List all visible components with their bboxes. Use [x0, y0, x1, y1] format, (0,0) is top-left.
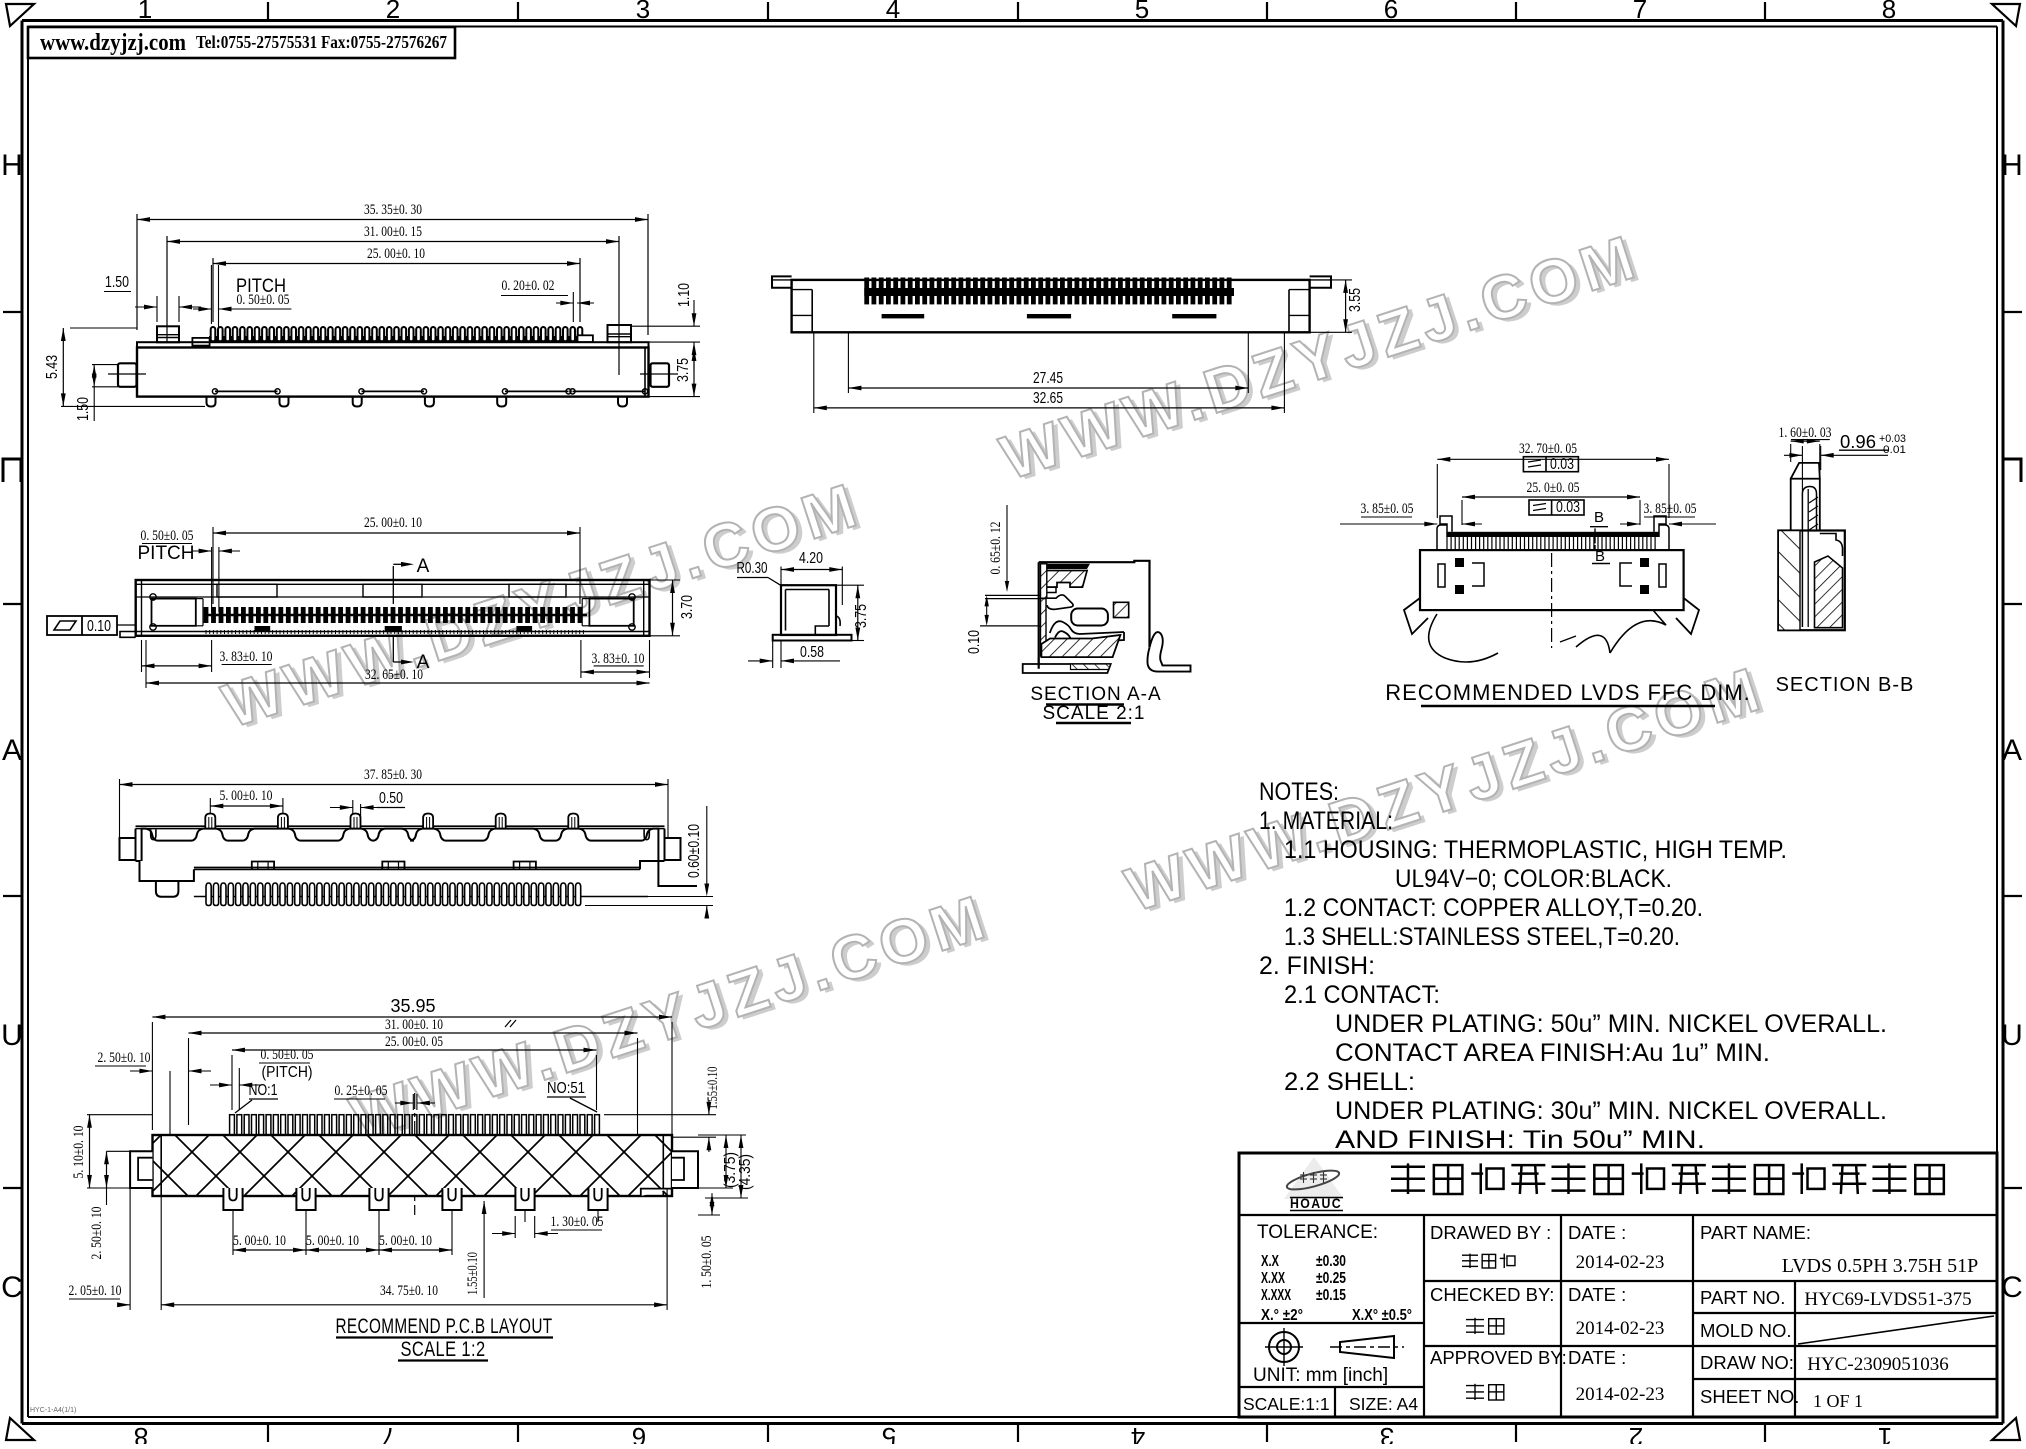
svg-text:8: 8: [134, 1422, 148, 1444]
svg-text:B: B: [1594, 509, 1604, 526]
svg-text:2. 50±0. 10: 2. 50±0. 10: [89, 1207, 105, 1260]
svg-text:U: U: [1, 1019, 23, 1052]
svg-text:1.55±0.10: 1.55±0.10: [705, 1067, 721, 1110]
svg-text:3. 85±0. 05: 3. 85±0. 05: [1644, 501, 1697, 517]
svg-text:2.2 SHELL:: 2.2 SHELL:: [1284, 1068, 1415, 1096]
svg-text:5: 5: [882, 1422, 896, 1444]
svg-text:U: U: [2001, 1019, 2023, 1052]
svg-text:35.95: 35.95: [390, 996, 435, 1016]
svg-text:3. 83±0. 10: 3. 83±0. 10: [592, 651, 645, 667]
svg-text:0. 20±0. 02: 0. 20±0. 02: [502, 278, 555, 294]
svg-text:4: 4: [886, 0, 900, 24]
svg-text:H: H: [2001, 149, 2023, 182]
svg-text:1. 60±0. 03: 1. 60±0. 03: [1779, 425, 1832, 441]
svg-text:2: 2: [386, 0, 400, 24]
svg-text:0.03: 0.03: [1556, 499, 1580, 516]
svg-text:3.55: 3.55: [1347, 288, 1364, 312]
svg-text:HOAUC: HOAUC: [1290, 1196, 1342, 1211]
svg-text:AND FINISH: Tin 50u” MIN.: AND FINISH: Tin 50u” MIN.: [1335, 1126, 1705, 1154]
svg-text:1.2 CONTACT: COPPER ALLOY,T: 1.2 CONTACT: COPPER ALLOY,T=0.20.: [1284, 894, 1703, 922]
svg-text:1 OF 1: 1 OF 1: [1813, 1391, 1863, 1411]
svg-text:TOLERANCE:: TOLERANCE:: [1257, 1222, 1378, 1243]
svg-text:32. 70±0. 05: 32. 70±0. 05: [1519, 441, 1577, 457]
svg-text:25. 00±0. 10: 25. 00±0. 10: [367, 246, 425, 262]
svg-text:2. FINISH:: 2. FINISH:: [1259, 952, 1375, 980]
svg-text:5. 10±0. 10: 5. 10±0. 10: [71, 1126, 87, 1179]
svg-text:UNDER PLATING: 50u” MIN. N: UNDER PLATING: 50u” MIN. NICKEL OVERALL.: [1335, 1010, 1887, 1038]
svg-text:5. 00±0. 10: 5. 00±0. 10: [233, 1233, 286, 1249]
svg-text:APPROVED BY:: APPROVED BY:: [1430, 1347, 1567, 1368]
svg-text:4: 4: [1131, 1422, 1145, 1444]
svg-text:31. 00±0. 15: 31. 00±0. 15: [364, 224, 422, 240]
svg-text:0.10: 0.10: [87, 618, 111, 635]
svg-text:DRAWED BY :: DRAWED BY :: [1430, 1222, 1551, 1243]
svg-text:3: 3: [636, 0, 650, 24]
svg-text:35. 35±0. 30: 35. 35±0. 30: [364, 202, 422, 218]
svg-text:UL94V−0; COLOR:BLACK.: UL94V−0; COLOR:BLACK.: [1395, 865, 1672, 893]
svg-text:SECTION A-A: SECTION A-A: [1030, 684, 1161, 705]
svg-text:X.XX: X.XX: [1261, 1270, 1285, 1287]
svg-text:www.dzyjzj.com: www.dzyjzj.com: [40, 30, 186, 56]
svg-text:MOLD NO.: MOLD NO.: [1700, 1320, 1791, 1341]
svg-text:C: C: [2001, 1271, 2023, 1304]
svg-text:0.58: 0.58: [800, 644, 824, 661]
svg-text:0. 50±0. 05: 0. 50±0. 05: [141, 528, 194, 544]
svg-text:UNIT: mm [inch]: UNIT: mm [inch]: [1253, 1365, 1388, 1386]
svg-text:31. 00±0. 10: 31. 00±0. 10: [385, 1017, 443, 1033]
svg-text:0.50: 0.50: [379, 790, 403, 807]
svg-text:1. MATERIAL:: 1. MATERIAL:: [1259, 807, 1393, 835]
svg-text:7: 7: [382, 1422, 396, 1444]
svg-text:2: 2: [1629, 1422, 1643, 1444]
svg-text:5.43: 5.43: [44, 355, 61, 379]
svg-text:X.X: X.X: [1261, 1253, 1279, 1270]
svg-text:1.50: 1.50: [75, 397, 92, 421]
svg-text:CHECKED BY:: CHECKED BY:: [1430, 1284, 1554, 1305]
svg-text:3. 85±0. 05: 3. 85±0. 05: [1361, 501, 1414, 517]
svg-text:2. 50±0. 10: 2. 50±0. 10: [98, 1050, 151, 1066]
svg-text:25. 00±0. 10: 25. 00±0. 10: [364, 515, 422, 531]
svg-text:37. 85±0. 30: 37. 85±0. 30: [364, 767, 422, 783]
svg-text:PITCH: PITCH: [138, 543, 195, 564]
svg-text:X.XXX: X.XXX: [1261, 1287, 1291, 1304]
svg-text:A: A: [2, 734, 22, 767]
svg-text:A: A: [2002, 734, 2022, 767]
svg-text:DATE :: DATE :: [1568, 1222, 1626, 1243]
svg-text:3.75: 3.75: [675, 358, 692, 382]
svg-text:0.96: 0.96: [1840, 432, 1876, 452]
svg-text:4.20: 4.20: [799, 550, 823, 567]
svg-text:NOTES:: NOTES:: [1259, 778, 1339, 806]
svg-text:X.X° ±0.5°: X.X° ±0.5°: [1352, 1307, 1412, 1324]
svg-text:1.55±0.10: 1.55±0.10: [465, 1252, 481, 1295]
svg-text:34. 75±0. 10: 34. 75±0. 10: [380, 1283, 438, 1299]
svg-text:CONTACT AREA FINISH:Au 1u”: CONTACT AREA FINISH:Au 1u” MIN.: [1335, 1039, 1770, 1067]
svg-text:1.3 SHELL:STAINLESS STEEL,T=: 1.3 SHELL:STAINLESS STEEL,T=0.20.: [1284, 923, 1680, 951]
svg-text:A: A: [417, 556, 430, 577]
svg-text:2014-02-23: 2014-02-23: [1576, 1252, 1665, 1273]
svg-text:5. 00±0. 10: 5. 00±0. 10: [379, 1233, 432, 1249]
svg-text:R0.30: R0.30: [737, 560, 768, 577]
svg-text:0. 25±0. 05: 0. 25±0. 05: [335, 1083, 388, 1099]
svg-text:RECOMMENDED LVDS FFC DIM.: RECOMMENDED LVDS FFC DIM.: [1385, 680, 1751, 705]
svg-text:3: 3: [1380, 1422, 1394, 1444]
svg-text:SECTION B-B: SECTION B-B: [1776, 674, 1915, 696]
svg-text:8: 8: [1882, 0, 1896, 24]
svg-text:±0.25: ±0.25: [1316, 1270, 1346, 1287]
svg-text:NO:1: NO:1: [249, 1082, 278, 1099]
svg-text:DRAW NO:: DRAW NO:: [1700, 1352, 1794, 1373]
svg-text:0.10: 0.10: [966, 630, 983, 654]
svg-text:SCALE:1:1: SCALE:1:1: [1243, 1394, 1330, 1414]
svg-text:27.45: 27.45: [1033, 370, 1063, 387]
svg-text:2014-02-23: 2014-02-23: [1576, 1384, 1665, 1405]
svg-text:SCALE 1:2: SCALE 1:2: [401, 1338, 486, 1361]
svg-text:1. 30±0. 05: 1. 30±0. 05: [551, 1214, 604, 1230]
svg-text:HYC-1-A4(1/1): HYC-1-A4(1/1): [30, 1407, 76, 1414]
svg-text:0.60±0.10: 0.60±0.10: [686, 824, 703, 878]
svg-text:5. 00±0. 10: 5. 00±0. 10: [306, 1233, 359, 1249]
svg-text:0.03: 0.03: [1550, 456, 1574, 473]
svg-text:25. 00±0. 05: 25. 00±0. 05: [385, 1034, 443, 1050]
svg-text:7: 7: [1633, 0, 1647, 24]
svg-text:1. 50±0. 05: 1. 50±0. 05: [699, 1236, 715, 1289]
svg-text:±0.30: ±0.30: [1316, 1253, 1346, 1270]
svg-text:0. 50±0. 05: 0. 50±0. 05: [261, 1047, 314, 1063]
svg-text:DATE :: DATE :: [1568, 1347, 1626, 1368]
svg-text:1: 1: [1878, 1422, 1892, 1444]
svg-text:±0.15: ±0.15: [1316, 1287, 1346, 1304]
svg-text:2014-02-23: 2014-02-23: [1576, 1318, 1665, 1339]
svg-text:LVDS 0.5PH 3.75H 51P: LVDS 0.5PH 3.75H 51P: [1782, 1255, 1979, 1277]
svg-text:0. 50±0. 05: 0. 50±0. 05: [237, 292, 290, 308]
svg-text:(4.35): (4.35): [737, 1154, 754, 1190]
svg-text:PART NAME:: PART NAME:: [1700, 1222, 1811, 1243]
svg-text:3. 83±0. 10: 3. 83±0. 10: [220, 649, 273, 665]
svg-text:2. 05±0. 10: 2. 05±0. 10: [69, 1283, 122, 1299]
svg-text:SCALE 2:1: SCALE 2:1: [1043, 703, 1146, 724]
svg-text:3.70: 3.70: [679, 595, 696, 619]
svg-text:Tel:0755-27575531 Fax:0755-27: Tel:0755-27575531 Fax:0755-27576267: [196, 32, 447, 52]
svg-text:H: H: [1, 149, 23, 182]
svg-text:X.° ±2°: X.° ±2°: [1261, 1307, 1303, 1324]
svg-text:DATE :: DATE :: [1568, 1284, 1626, 1305]
svg-text:RECOMMEND P.C.B LAYOUT: RECOMMEND P.C.B LAYOUT: [336, 1315, 553, 1338]
svg-text:SHEET NO.: SHEET NO.: [1700, 1386, 1799, 1407]
svg-text:HYC69-LVDS51-375: HYC69-LVDS51-375: [1804, 1289, 1971, 1310]
svg-text:UNDER PLATING: 30u” MIN. N: UNDER PLATING: 30u” MIN. NICKEL OVERALL.: [1335, 1097, 1887, 1125]
svg-text:HYC-2309051036: HYC-2309051036: [1807, 1354, 1948, 1375]
svg-text:6: 6: [1384, 0, 1398, 24]
svg-text:25. 0±0. 05: 25. 0±0. 05: [1527, 480, 1580, 496]
svg-text:PART NO.: PART NO.: [1700, 1287, 1785, 1308]
svg-text:32.65: 32.65: [1033, 390, 1063, 407]
svg-text:2.1 CONTACT:: 2.1 CONTACT:: [1284, 981, 1440, 1009]
svg-text:6: 6: [632, 1422, 646, 1444]
svg-text:1.10: 1.10: [676, 283, 693, 307]
svg-text:5: 5: [1135, 0, 1149, 24]
svg-text:(PITCH): (PITCH): [262, 1064, 313, 1081]
svg-text:5. 00±0. 10: 5. 00±0. 10: [220, 788, 273, 804]
svg-text:1.1 HOUSING: THERMOPLASTIC,: 1.1 HOUSING: THERMOPLASTIC, HIGH TEMP.: [1284, 836, 1787, 864]
svg-text:SIZE: A4: SIZE: A4: [1349, 1394, 1418, 1414]
svg-text:0. 65±0. 12: 0. 65±0. 12: [988, 522, 1004, 575]
svg-text:32. 65±0. 10: 32. 65±0. 10: [365, 667, 423, 683]
svg-text:3.75: 3.75: [853, 604, 870, 628]
svg-text:1.50: 1.50: [105, 274, 129, 291]
svg-text:1: 1: [138, 0, 152, 24]
svg-text:NO:51: NO:51: [547, 1080, 585, 1097]
svg-text:C: C: [1, 1271, 23, 1304]
